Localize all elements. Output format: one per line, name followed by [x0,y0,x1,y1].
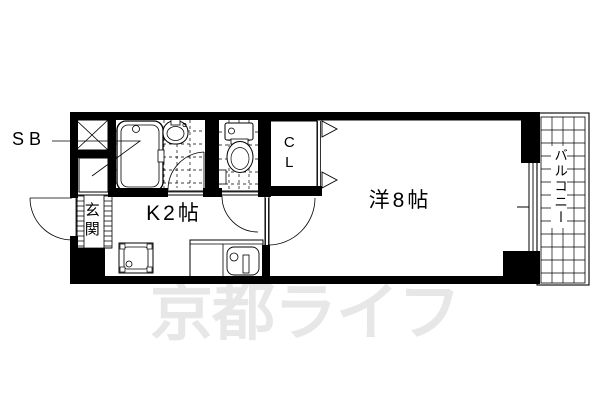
floor-plan-drawing [0,0,600,400]
balcony-label: バルコニー [551,146,567,228]
toilet-door [222,192,258,232]
kitchen-counter [190,240,263,277]
soap-shelf [158,150,164,162]
closet-door-triangle-top [322,121,337,137]
closet-doors [318,121,338,188]
sliding-window [517,163,537,251]
wall-kitchen-room [262,245,270,276]
wall-bottom [70,276,540,284]
closet-label: CL [281,134,297,174]
closet-front-face [318,121,321,187]
shoe-box-label: SB [12,130,46,149]
pipe-shaft-box [76,120,108,150]
paper-holder [218,170,226,184]
wall-toilet-closet [258,112,271,197]
sink-faucet [243,255,249,273]
closet-door-triangle-bottom [322,172,337,188]
wall-top-right-block [521,112,540,163]
wall-shoebox-divider [76,150,108,158]
bathroom-door [168,152,205,192]
western-room-label: 洋8帖 [352,190,448,212]
entrance-label: 玄関 [83,202,99,240]
wall-bath-toilet [205,112,219,197]
wall-bath-bottom-right [203,188,222,197]
toilet [218,123,253,184]
wash-basin [163,118,188,144]
wall-top [70,112,540,120]
kitchen-label: K2帖 [128,203,220,225]
room-door [266,198,316,245]
wall-shoebox-bath [108,112,116,197]
pillar-bottom-right [503,251,540,284]
floor-plan-canvas: 京都ライフ [0,0,600,400]
entrance-door [30,198,72,240]
wall-closet-bottom [260,186,322,196]
bathtub [117,121,164,191]
x-mark [76,120,108,150]
wall-bath-bottom-left [108,188,168,197]
washing-machine-pan [119,243,153,273]
